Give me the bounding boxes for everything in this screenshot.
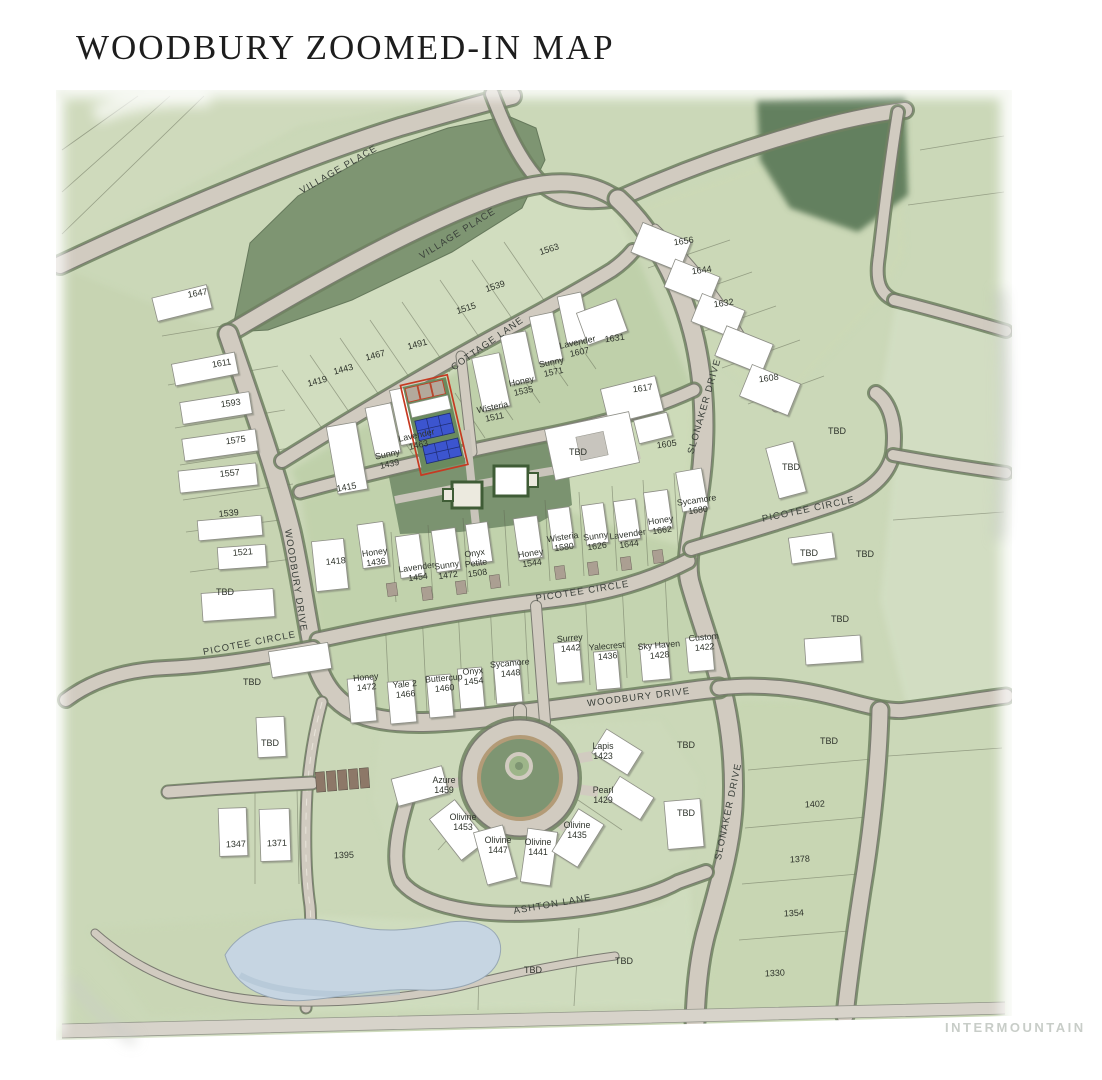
named-lot-pearl-1429: Pearl1429 bbox=[593, 785, 614, 805]
tbd-lot-label: TBD bbox=[524, 965, 543, 975]
named-lot-olivine-1453: Olivine1453 bbox=[450, 812, 477, 832]
lot-label-1354: 1354 bbox=[784, 907, 805, 918]
tbd-lot-label: TBD bbox=[782, 462, 801, 472]
pavilion bbox=[494, 466, 528, 496]
intermountain-watermark: INTERMOUNTAIN bbox=[945, 1020, 1086, 1035]
woodbury-map: VILLAGE PLACE VILLAGE PLACE COTTAGE LANE… bbox=[0, 0, 1102, 1080]
lot-label-1539-west: 1539 bbox=[218, 507, 239, 519]
named-lot-olivine-1435: Olivine1435 bbox=[564, 820, 591, 840]
lot-label-1371: 1371 bbox=[267, 838, 287, 849]
named-lot-olivine-1441: Olivine1441 bbox=[525, 837, 552, 857]
named-lot-lapis-1423: Lapis1423 bbox=[592, 741, 614, 761]
lot-label-1418: 1418 bbox=[325, 555, 346, 567]
tbd-lot-label: TBD bbox=[800, 548, 819, 558]
lot-label-1347: 1347 bbox=[226, 839, 246, 850]
tbd-lot-label: TBD bbox=[856, 549, 875, 559]
tbd-lot-label: TBD bbox=[216, 587, 235, 597]
road-west-street bbox=[168, 783, 312, 792]
tbd-lot-label: TBD bbox=[828, 426, 847, 436]
woodbury-map-page: WOODBURY ZOOMED-IN MAP bbox=[0, 0, 1102, 1080]
tbd-lot-label: TBD bbox=[243, 677, 262, 687]
tbd-lot-label: TBD bbox=[677, 808, 696, 818]
tbd-lot-label: TBD bbox=[831, 614, 850, 624]
named-lot-azure-1459: Azure1459 bbox=[433, 775, 456, 795]
tbd-lot-label: TBD bbox=[569, 447, 588, 457]
tbd-lot-label: TBD bbox=[615, 956, 634, 966]
named-lot-onyx-1454: Onyx1454 bbox=[462, 665, 485, 687]
pavilion bbox=[452, 482, 482, 508]
tbd-lot-label: TBD bbox=[677, 740, 696, 750]
named-lot-yale-2-1466: Yale 21466 bbox=[392, 678, 418, 700]
tbd-lot-label: TBD bbox=[820, 736, 839, 746]
page-title: WOODBURY ZOOMED-IN MAP bbox=[76, 28, 615, 68]
lot-label-1402: 1402 bbox=[805, 798, 826, 809]
lot-label-1330: 1330 bbox=[765, 967, 786, 978]
named-lot-olivine-1447: Olivine1447 bbox=[485, 835, 512, 855]
lot-label-1521: 1521 bbox=[232, 546, 253, 558]
lot-label-1378: 1378 bbox=[790, 853, 811, 864]
tbd-lot-label: TBD bbox=[261, 738, 280, 748]
lot-label-1395: 1395 bbox=[334, 850, 354, 861]
lot-label-1557: 1557 bbox=[219, 467, 240, 479]
